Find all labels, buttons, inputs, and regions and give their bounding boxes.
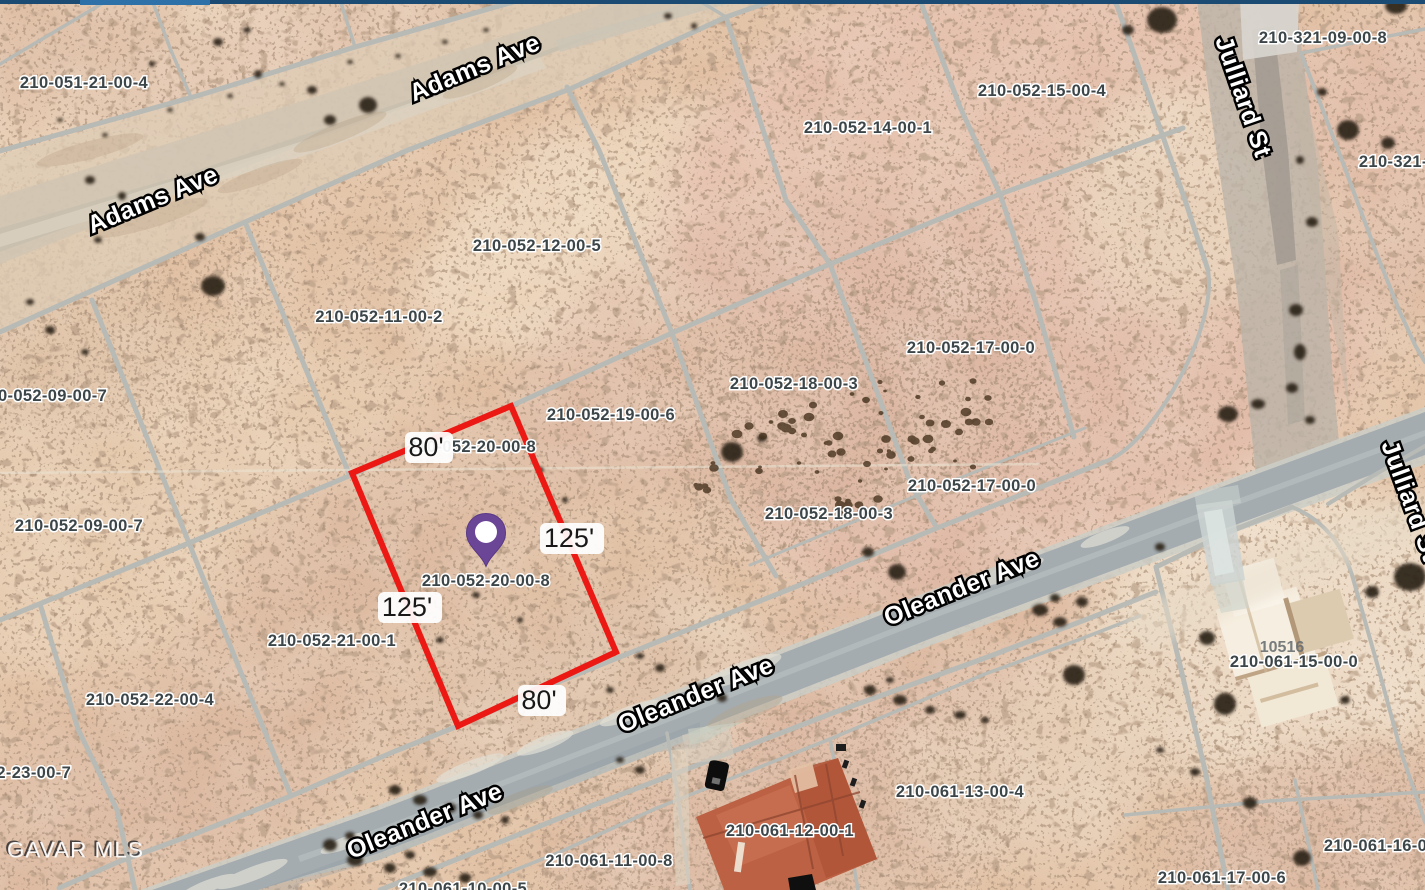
- svg-text:210-052-17-00-0: 210-052-17-00-0: [908, 477, 1036, 495]
- svg-text:210-052-18-00-3: 210-052-18-00-3: [765, 505, 893, 523]
- svg-text:80': 80': [408, 432, 443, 462]
- svg-text:80': 80': [521, 685, 556, 715]
- svg-text:210-052-12-00-5: 210-052-12-00-5: [473, 237, 601, 255]
- svg-text:125': 125': [382, 592, 432, 622]
- svg-text:210-052-20-00-8: 210-052-20-00-8: [422, 572, 550, 590]
- svg-text:210-052-11-00-2: 210-052-11-00-2: [315, 308, 442, 326]
- svg-text:210-052-09-00-7: 210-052-09-00-7: [0, 387, 107, 405]
- svg-text:210-051-21-00-4: 210-051-21-00-4: [20, 74, 149, 92]
- svg-text:210-052-19-00-6: 210-052-19-00-6: [547, 406, 675, 424]
- svg-text:210-052-23-00-7: 210-052-23-00-7: [0, 764, 71, 782]
- svg-text:10516: 10516: [1260, 639, 1305, 656]
- svg-text:210-061-17-00-6: 210-061-17-00-6: [1158, 869, 1286, 887]
- svg-text:125': 125': [544, 523, 594, 553]
- svg-text:210-052-09-00-7: 210-052-09-00-7: [15, 517, 143, 535]
- svg-text:210-061-11-00-8: 210-061-11-00-8: [545, 852, 672, 870]
- svg-text:210-061-13-00-4: 210-061-13-00-4: [896, 783, 1025, 801]
- svg-text:210-321-09-00-8: 210-321-09-00-8: [1259, 29, 1387, 47]
- svg-text:210-052-21-00-1: 210-052-21-00-1: [268, 632, 396, 650]
- svg-text:210-052-14-00-1: 210-052-14-00-1: [804, 119, 932, 137]
- svg-text:210-061-10-00-5: 210-061-10-00-5: [399, 880, 527, 890]
- svg-text:GAVAR MLS: GAVAR MLS: [7, 838, 144, 863]
- svg-text:210-321-08-00-9: 210-321-08-00-9: [1359, 153, 1425, 171]
- svg-text:210-052-17-00-0: 210-052-17-00-0: [907, 339, 1035, 357]
- svg-text:210-052-18-00-3: 210-052-18-00-3: [730, 375, 858, 393]
- svg-text:210-061-12-00-1: 210-061-12-00-1: [726, 822, 854, 840]
- svg-text:210-052-15-00-4: 210-052-15-00-4: [978, 82, 1107, 100]
- svg-text:210-052-22-00-4: 210-052-22-00-4: [86, 691, 215, 709]
- svg-text:210-061-16-00-7: 210-061-16-00-7: [1324, 837, 1425, 855]
